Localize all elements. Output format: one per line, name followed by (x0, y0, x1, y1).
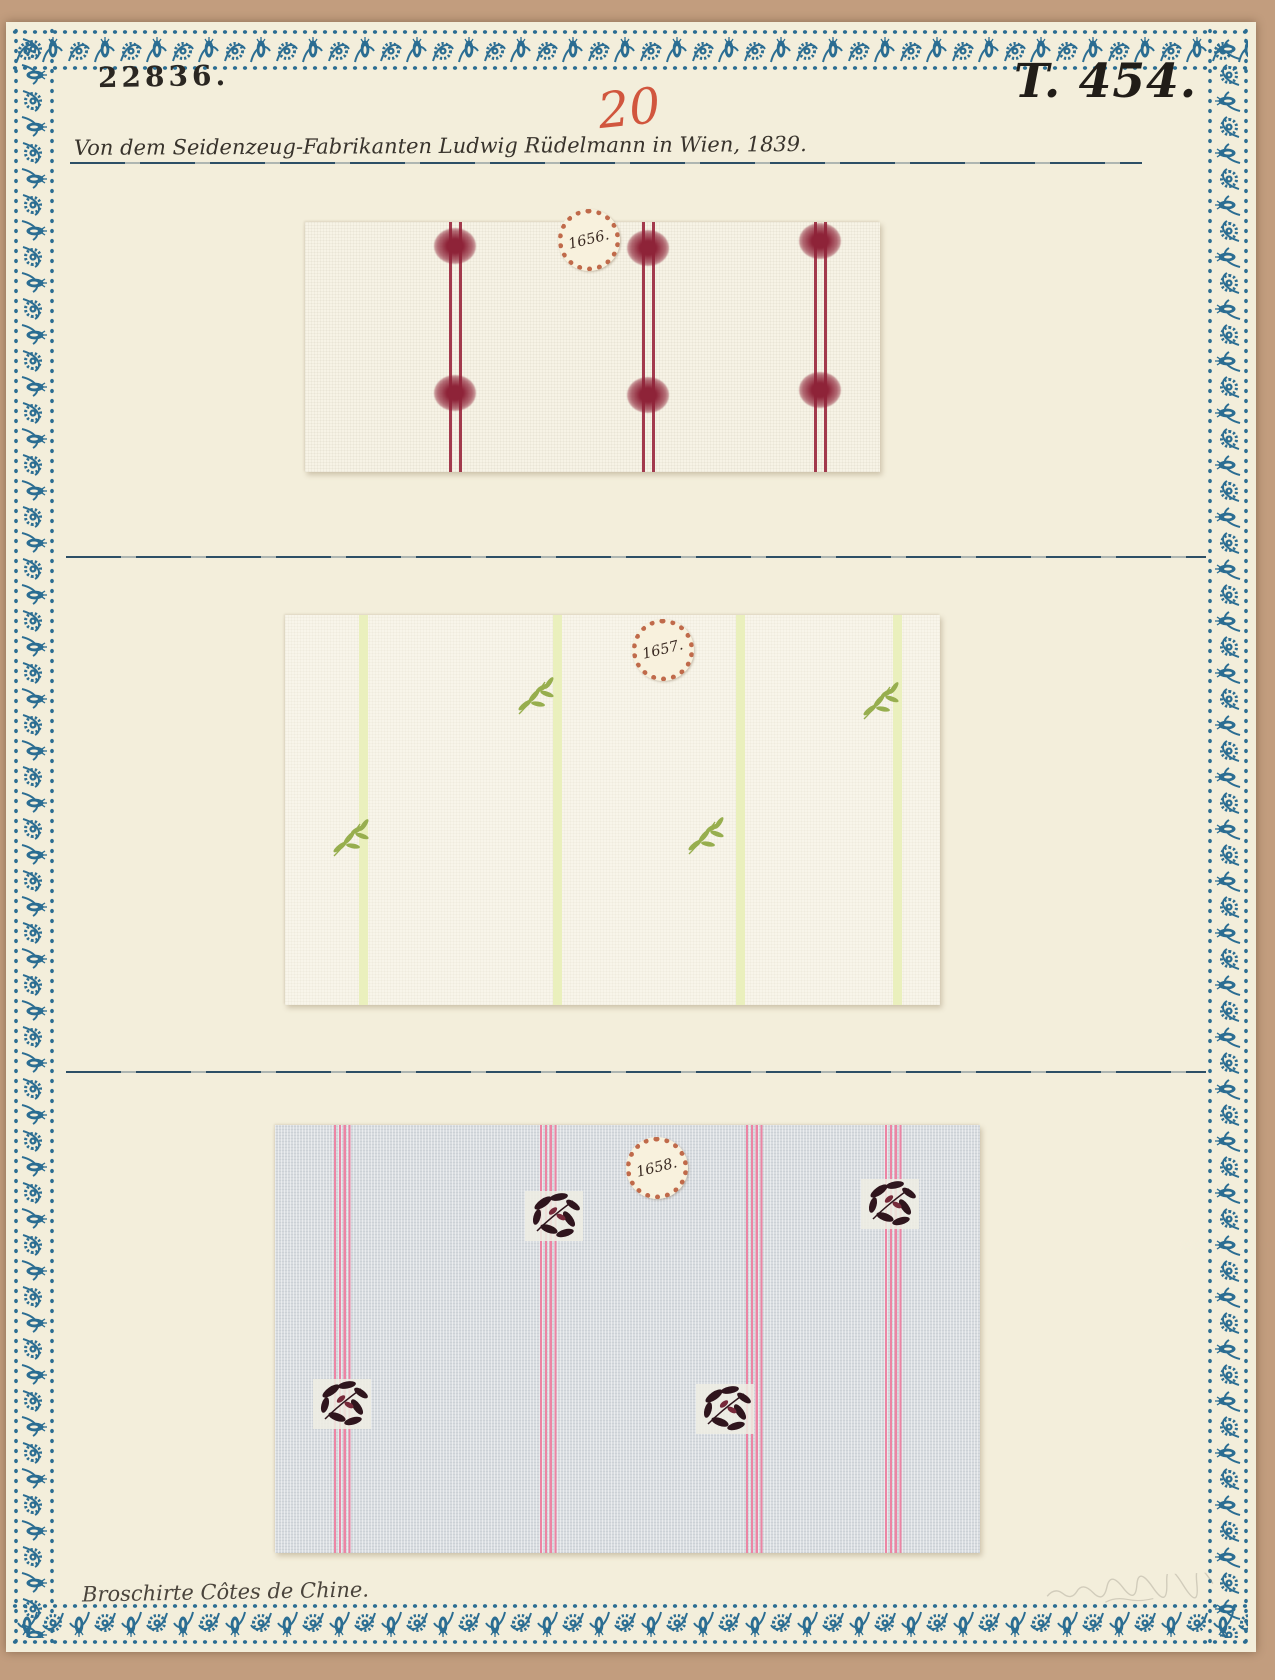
leaf-sprig (326, 816, 374, 858)
album-page: 22836. T. 454. 20 Von dem Seidenzeug-Fab… (6, 22, 1256, 1652)
section-divider (66, 1071, 1206, 1073)
sample-board: 22836. T. 454. 20 Von dem Seidenzeug-Fab… (0, 0, 1275, 1680)
floral-border-left (20, 36, 48, 1638)
brocade-dot (434, 375, 476, 411)
pink-stripe-band (746, 1125, 765, 1553)
brocade-dot (434, 228, 476, 264)
seal-number: 1658. (635, 1155, 679, 1181)
caption: Broschirte Côtes de Chine. (82, 1577, 369, 1606)
seal-number: 1656. (567, 227, 611, 253)
floral-motif (694, 1380, 758, 1438)
fabric-swatch-1658 (275, 1125, 980, 1553)
bead-chain-left-inner (48, 26, 56, 1648)
provenance-line: Von dem Seidenzeug-Fabrikanten Ludwig Rü… (74, 132, 807, 160)
plate-number: T. 454. (1014, 54, 1197, 109)
brocade-dot (799, 223, 841, 259)
floral-motif (311, 1375, 375, 1433)
bead-chain-right-inner (1206, 26, 1214, 1648)
pink-stripe-band (334, 1125, 353, 1553)
seal-1657: 1657. (632, 619, 694, 681)
seal-number: 1657. (641, 637, 685, 663)
seal-1656: 1656. (558, 209, 620, 271)
leaf-sprig (681, 814, 729, 856)
header-rule (70, 162, 1142, 164)
brocade-dot (627, 230, 669, 266)
brocade-dot (627, 377, 669, 413)
brocade-dot (799, 372, 841, 408)
green-stripe (893, 615, 902, 1005)
floral-border-right (1214, 36, 1242, 1638)
bead-chain-left-outer (12, 26, 20, 1648)
inventory-number: 22836. (98, 59, 230, 94)
green-stripe (736, 615, 745, 1005)
floral-border-bottom (14, 1610, 1248, 1638)
seal-1658: 1658. (626, 1137, 688, 1199)
floral-motif (859, 1175, 923, 1233)
green-stripe (359, 615, 368, 1005)
leaf-sprig (856, 679, 904, 721)
leaf-sprig (511, 674, 559, 716)
crimson-stripe (814, 222, 827, 472)
fabric-swatch-1657 (285, 615, 940, 1005)
bead-chain-top-outer (10, 28, 1252, 36)
floral-motif (523, 1187, 587, 1245)
section-divider (66, 556, 1206, 558)
bead-chain-right-outer (1242, 26, 1250, 1648)
page-number: 20 (595, 77, 663, 140)
bead-chain-bottom-outer (10, 1638, 1252, 1646)
